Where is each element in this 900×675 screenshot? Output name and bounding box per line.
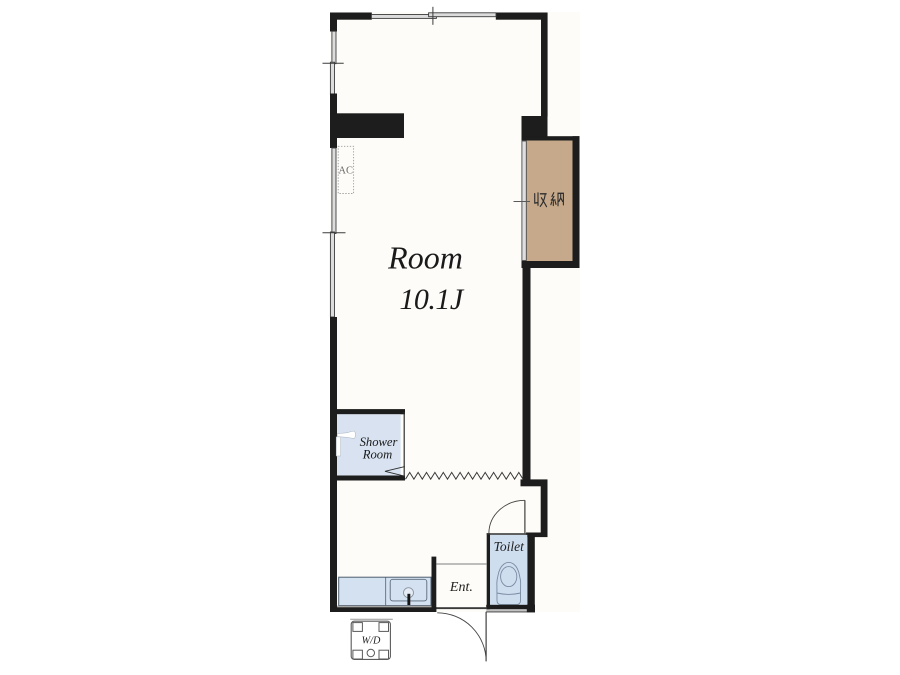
svg-text:Ent.: Ent. (449, 580, 473, 595)
svg-text:10.1J: 10.1J (399, 283, 465, 316)
svg-text:Room: Room (387, 240, 463, 276)
svg-text:Toilet: Toilet (494, 539, 526, 554)
svg-text:Room: Room (362, 447, 392, 461)
svg-text:W/D: W/D (362, 636, 381, 647)
svg-text:AC: AC (338, 166, 353, 177)
